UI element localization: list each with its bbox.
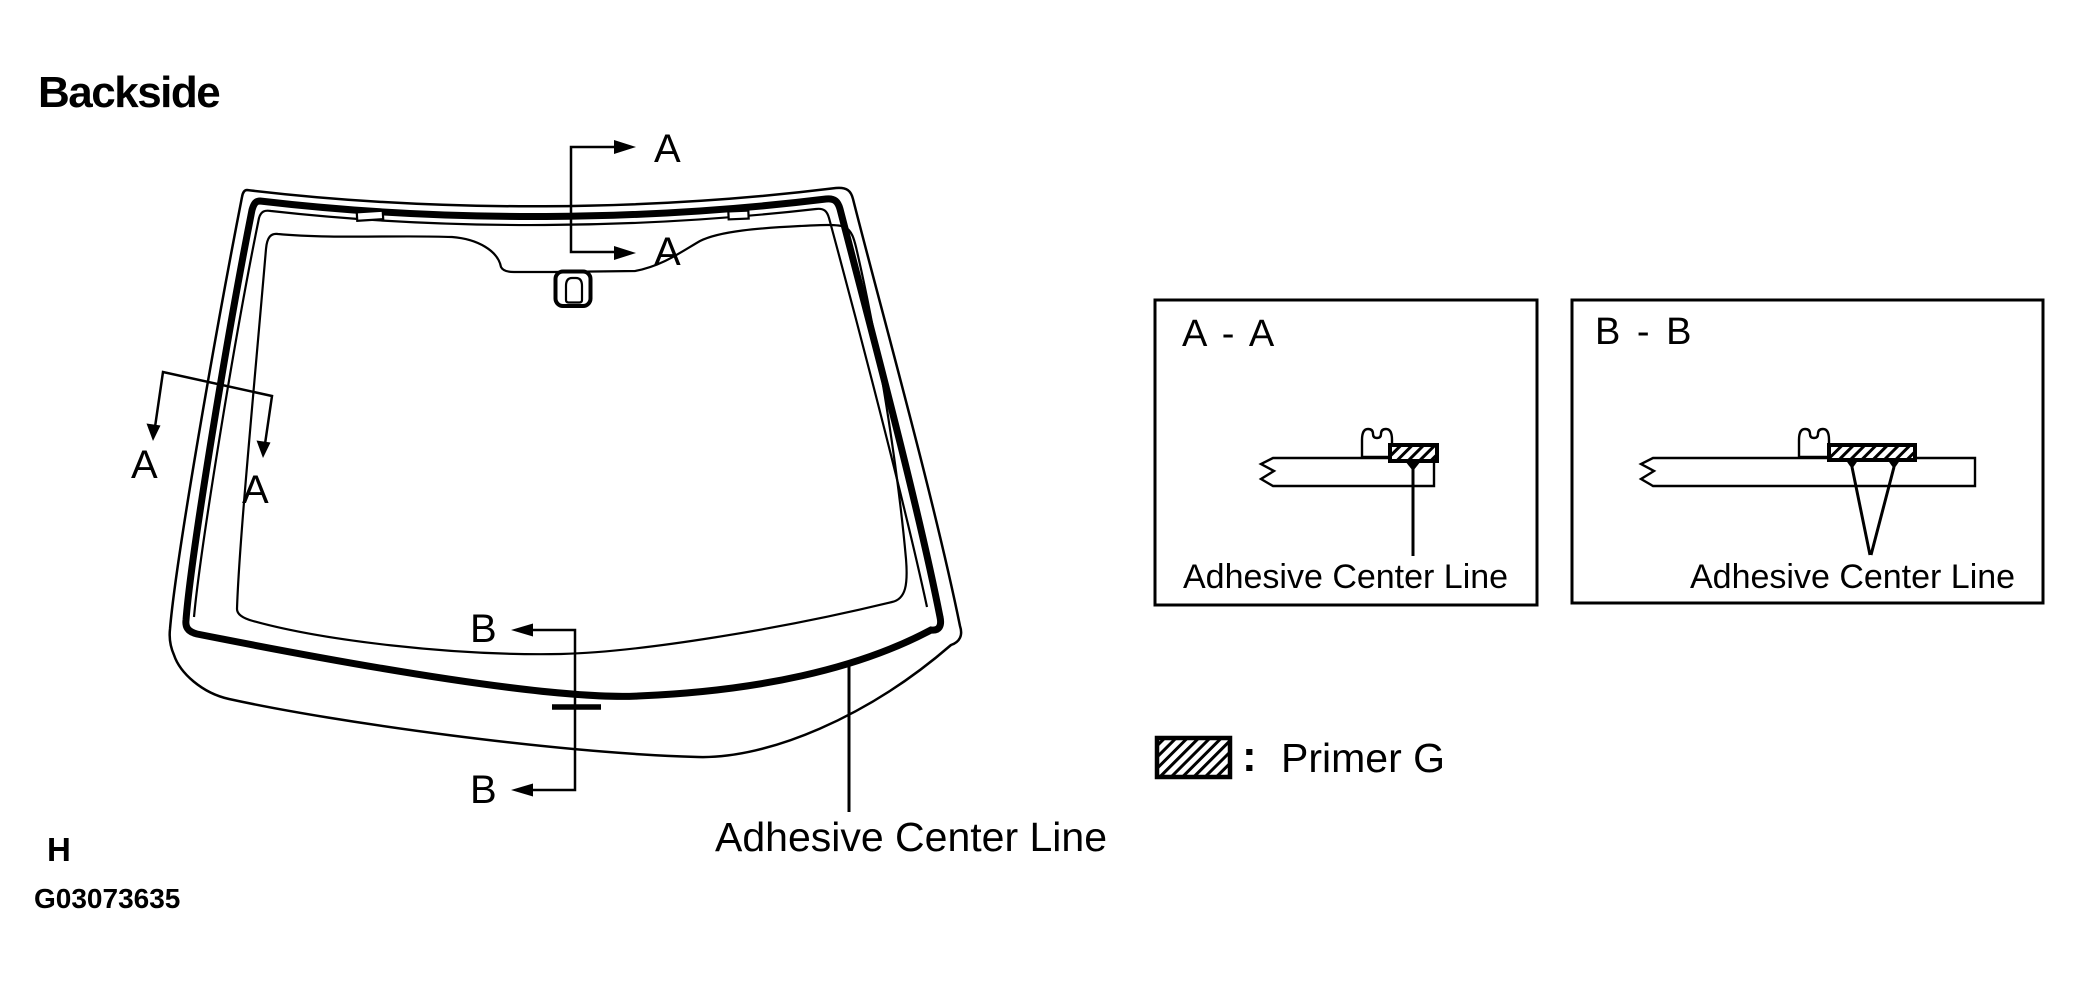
section-marker-a: A bbox=[654, 127, 681, 171]
hatch-primer-swatch bbox=[1157, 738, 1230, 777]
section-marker-a: A bbox=[242, 468, 269, 512]
glass-section bbox=[1641, 458, 1975, 486]
legend-label: Primer G bbox=[1281, 735, 1445, 781]
section-marker-b: B bbox=[470, 768, 497, 812]
mirror-bracket bbox=[556, 272, 591, 307]
locator-tab-left bbox=[357, 211, 383, 221]
detail-panel-bb: B - B Adhesive Center Line bbox=[1572, 300, 2043, 603]
panel-aa-title: A - A bbox=[1182, 313, 1277, 355]
panel-aa-label: Adhesive Center Line bbox=[1183, 558, 1508, 596]
locator-tab-right bbox=[728, 211, 748, 220]
windshield-primer-diagram: Backside A A A A B bbox=[0, 0, 2080, 980]
primer-strip bbox=[1829, 445, 1915, 460]
windshield-drawing bbox=[170, 188, 961, 757]
panel-bb-title: B - B bbox=[1595, 311, 1694, 353]
section-marker-a: A bbox=[131, 443, 158, 487]
primer-strip bbox=[1390, 445, 1437, 461]
panel-bb-label: Adhesive Center Line bbox=[1690, 558, 2015, 596]
page-title: Backside bbox=[38, 68, 219, 117]
adhesive-center-line-label: Adhesive Center Line bbox=[715, 814, 1107, 860]
legend-colon: : bbox=[1242, 732, 1257, 781]
section-marker-b: B bbox=[470, 607, 497, 651]
detail-panel-aa: A - A Adhesive Center Line bbox=[1155, 300, 1537, 605]
page-marker: H bbox=[47, 831, 71, 868]
section-marker-a: A bbox=[654, 230, 681, 274]
figure-id: G03073635 bbox=[34, 883, 180, 914]
legend-primer: : Primer G bbox=[1157, 732, 1445, 781]
